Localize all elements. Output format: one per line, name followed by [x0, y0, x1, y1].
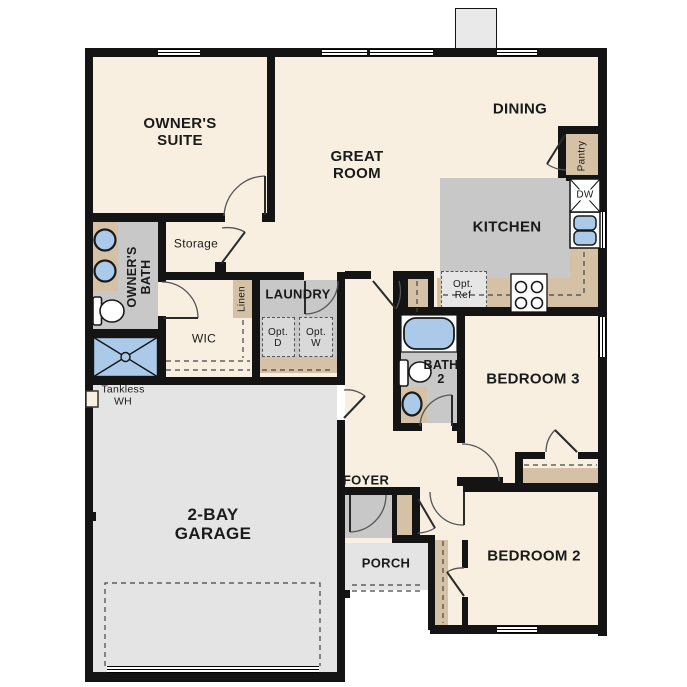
owners-suite-label: OWNER'SSUITE: [143, 116, 216, 150]
opt-ref-label: Opt.Ref: [453, 279, 473, 301]
kitchen-label: KITCHEN: [473, 220, 542, 237]
fixtures-and-door-swings: [0, 0, 687, 687]
bath2-label: BATH2: [424, 358, 459, 386]
great-room-label: GREATROOM: [331, 149, 384, 183]
opt-dryer-label: Opt.D: [268, 327, 288, 349]
garage-label: 2-BAYGARAGE: [175, 505, 251, 543]
dining-label: DINING: [493, 102, 547, 119]
tankless-wh-label: TanklessWH: [101, 384, 144, 408]
shower-icon: [93, 337, 158, 377]
stove-icon: [511, 274, 547, 312]
opt-washer-label: Opt.W: [306, 327, 326, 349]
foyer-label: FOYER: [343, 474, 389, 489]
tankless-water-heater-icon: [86, 391, 98, 407]
storage-label: Storage: [174, 237, 218, 250]
toilet-icon: [93, 297, 124, 325]
porch-label: PORCH: [362, 557, 410, 572]
pantry-label: Pantry: [576, 141, 587, 172]
bedroom3-label: BEDROOM 3: [486, 372, 580, 389]
dashed-lines: [105, 251, 597, 666]
bath2-sink-icon: [403, 393, 422, 416]
dishwasher-label: DW: [575, 189, 594, 200]
wic-label: WIC: [192, 332, 216, 345]
laundry-label: LAUNDRY: [265, 288, 330, 303]
vanity-sinks-icon: [95, 230, 116, 282]
bedroom2-label: BEDROOM 2: [487, 549, 581, 566]
kitchen-sink-icon: [570, 212, 600, 248]
bathtub-icon: [401, 315, 457, 352]
floor-plan: OWNER'SSUITE GREATROOM DINING KITCHEN OW…: [0, 0, 687, 687]
owners-bath-label: OWNER'SBATH: [125, 246, 153, 307]
linen-hall-label: Linen: [236, 286, 247, 312]
